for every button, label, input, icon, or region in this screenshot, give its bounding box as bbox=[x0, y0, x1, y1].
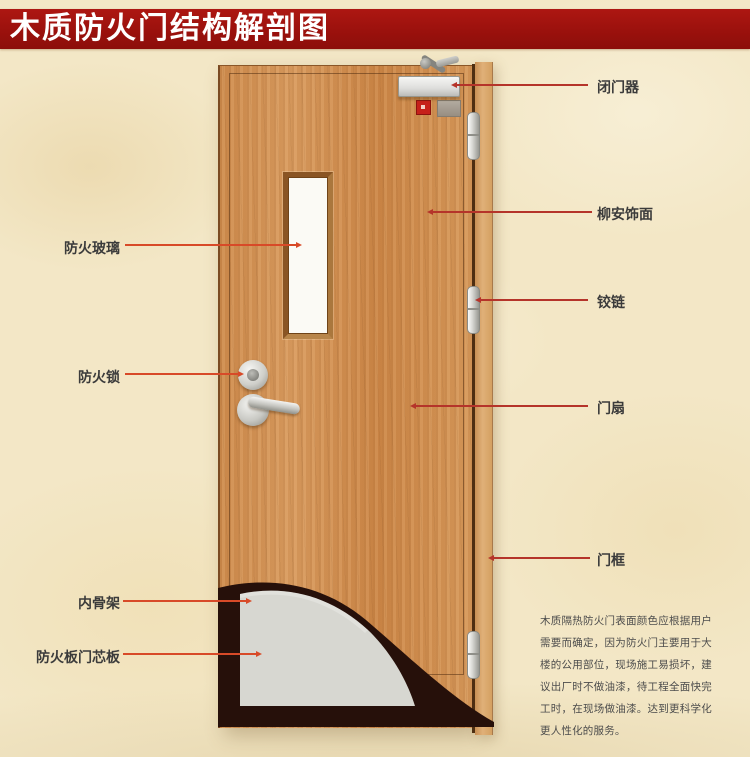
leader-line-door-closer bbox=[456, 84, 588, 86]
leader-line-fire-glass bbox=[125, 244, 297, 246]
hinge-top-icon bbox=[467, 112, 480, 160]
label-door-frame: 门框 bbox=[597, 550, 625, 570]
leader-line-fire-lock bbox=[125, 373, 239, 375]
label-door-closer: 闭门器 bbox=[597, 77, 639, 97]
leader-line-inner-skeleton bbox=[123, 600, 247, 602]
leader-line-door-frame bbox=[493, 557, 590, 559]
alarm-indicator bbox=[416, 100, 431, 115]
leader-line-hinge bbox=[480, 299, 588, 301]
hinge-middle-icon bbox=[467, 286, 480, 334]
label-hinge: 铰链 bbox=[597, 292, 625, 312]
label-fire-glass: 防火玻璃 bbox=[20, 238, 120, 258]
label-core-panel: 防火板门芯板 bbox=[20, 647, 120, 667]
leader-line-lauan-veneer bbox=[432, 211, 592, 213]
metal-plate bbox=[437, 100, 461, 117]
title-bar: 木质防火门结构解剖图 bbox=[0, 9, 750, 49]
label-inner-skeleton: 内骨架 bbox=[20, 593, 120, 613]
label-lauan-veneer: 柳安饰面 bbox=[597, 204, 653, 224]
leader-line-door-leaf bbox=[415, 405, 588, 407]
description-text: 木质隔热防火门表面颜色应根据用户需要而确定，因为防火门主要用于大楼的公用部位，现… bbox=[540, 610, 712, 742]
label-fire-lock: 防火锁 bbox=[20, 367, 120, 387]
label-door-leaf: 门扇 bbox=[597, 398, 625, 418]
poster: 木质防火门结构解剖图 防火玻璃 防火锁 内骨架 防火板门芯板 闭门器 柳安饰面 … bbox=[0, 0, 750, 757]
fire-glass-window bbox=[283, 172, 333, 339]
leader-line-core-panel bbox=[123, 653, 257, 655]
page-title: 木质防火门结构解剖图 bbox=[0, 9, 750, 49]
door-closer-knob bbox=[420, 58, 431, 69]
